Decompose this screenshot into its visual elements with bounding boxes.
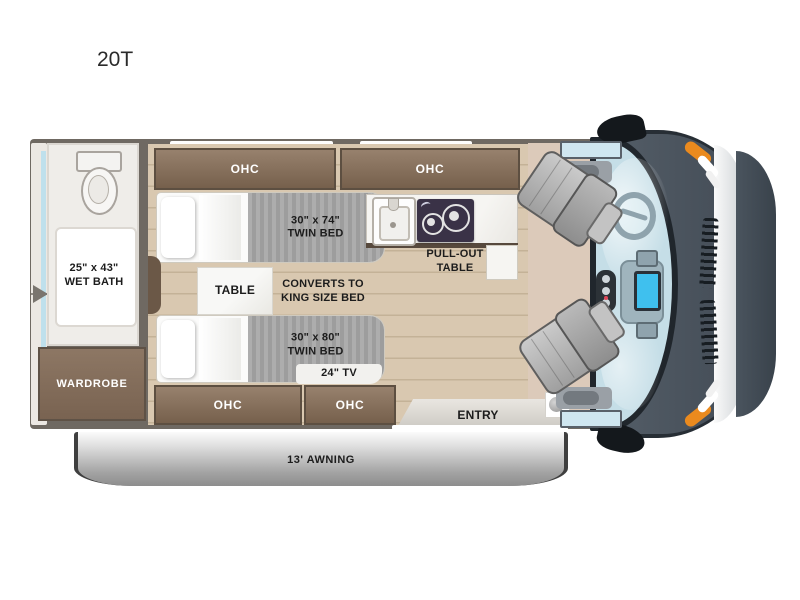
- toilet-seat-icon: [88, 175, 109, 204]
- bed-sheet: [199, 195, 241, 260]
- ohc-label: OHC: [416, 162, 445, 176]
- dash-vent-icon: [636, 250, 658, 267]
- entry-label: ENTRY: [428, 409, 528, 423]
- burner-center: [427, 218, 435, 226]
- wet-bath-label: 25" x 43" WET BATH: [50, 262, 138, 289]
- twin-bed-bottom: 30" x 80" TWIN BED 24" TV: [157, 316, 384, 382]
- awning-label: 13' AWNING: [74, 454, 568, 468]
- pullout-line1: PULL-OUT: [417, 248, 493, 262]
- wet-bath-size: 25" x 43": [50, 262, 138, 276]
- cup-slot: [602, 287, 610, 295]
- ohc-cabinet-top-left: OHC: [154, 148, 336, 190]
- converts-note: CONVERTS TO KING SIZE BED: [274, 278, 372, 305]
- grille-vent-icon: [699, 300, 718, 365]
- ohc-label: OHC: [231, 162, 260, 176]
- infotainment-screen: [634, 271, 661, 311]
- passenger-door-window: [560, 410, 622, 428]
- bed-name: TWIN BED: [252, 228, 379, 242]
- van-bumper: [736, 151, 776, 417]
- wet-bath-name: WET BATH: [50, 276, 138, 290]
- tv-label: 24" TV: [321, 367, 357, 381]
- twin-bed-top-label: 30" x 74" TWIN BED: [252, 214, 379, 241]
- dinette-table: TABLE: [197, 267, 273, 315]
- entry-sill: [392, 425, 568, 430]
- pullout-line2: TABLE: [417, 262, 493, 276]
- burner-center: [449, 211, 459, 221]
- bed-head-cushion: [148, 256, 161, 314]
- faucet-icon: [388, 198, 399, 211]
- ohc-label: OHC: [336, 398, 365, 412]
- floorplan-page: 20T 25" x 43" WET BATH WARDROBE OHC OHC …: [0, 0, 800, 600]
- bed-size: 30" x 80": [252, 332, 379, 346]
- indicator-dot: [604, 296, 608, 300]
- table-label: TABLE: [215, 284, 255, 298]
- floorplan-title: 20T: [97, 48, 133, 72]
- converts-line2: KING SIZE BED: [274, 292, 372, 306]
- ohc-cabinet-top-right: OHC: [340, 148, 520, 190]
- tv-location: 24" TV: [296, 364, 382, 384]
- wardrobe-label: WARDROBE: [57, 378, 128, 390]
- wardrobe-cabinet: WARDROBE: [38, 347, 146, 421]
- dash-vent-icon: [636, 322, 658, 339]
- rear-door-latch-icon: [33, 285, 48, 303]
- ohc-cabinet-bottom-left: OHC: [154, 385, 302, 425]
- drain-icon: [390, 222, 396, 228]
- driver-door-window: [560, 141, 622, 159]
- bed-name: TWIN BED: [252, 345, 379, 359]
- passenger-door-armrest: [563, 391, 599, 405]
- twin-bed-top: 30" x 74" TWIN BED: [157, 193, 384, 262]
- bed-sheet: [199, 318, 241, 380]
- cup-slot: [602, 275, 610, 283]
- bed-size: 30" x 74": [252, 214, 379, 228]
- pillow-icon: [161, 197, 195, 258]
- ohc-cabinet-bottom-right: OHC: [304, 385, 396, 425]
- ohc-label: OHC: [214, 398, 243, 412]
- pillow-icon: [161, 320, 195, 378]
- converts-line1: CONVERTS TO: [274, 278, 372, 292]
- twin-bed-bottom-label: 30" x 80" TWIN BED: [252, 332, 379, 359]
- pull-out-table-label: PULL-OUT TABLE: [417, 248, 493, 275]
